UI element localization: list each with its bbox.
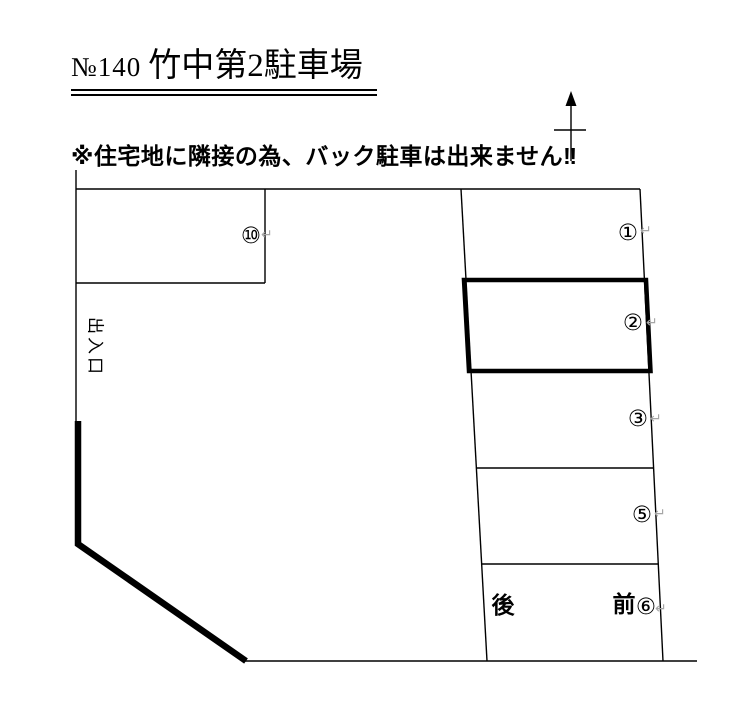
return-mark-icon: ↵: [655, 600, 667, 616]
north-arrow-icon: [554, 91, 586, 161]
space-label-5: ⑤: [632, 502, 652, 527]
property-boundary: [76, 170, 697, 661]
return-mark-icon: ↵: [650, 410, 662, 426]
space-10-rect: [76, 189, 265, 283]
space-label-3: ③: [628, 406, 648, 431]
space-label-10: ⑩: [241, 223, 261, 248]
parking-diagram: 出入口 後 前 ① ② ③ ⑤ ⑥ ⑩ ↵ ↵ ↵ ↵ ↵ ↵: [0, 0, 734, 727]
north-arrow-head: [566, 91, 577, 106]
return-mark-icon: ↵: [640, 222, 652, 238]
boundary-thick-wall: [78, 421, 246, 661]
return-mark-icon: ↵: [646, 314, 658, 330]
space-label-2: ②: [623, 310, 643, 335]
return-mark-icon: ↵: [261, 226, 273, 242]
front-label: 前: [613, 591, 636, 617]
space-label-1: ①: [618, 220, 638, 245]
entrance-label: 出入口: [86, 317, 105, 377]
space-label-6: ⑥: [636, 594, 656, 619]
parking-map-document: №140竹中第2駐車場 ※住宅地に隣接の為、バック駐車は出来ません‼: [0, 0, 734, 727]
back-label: 後: [492, 592, 516, 618]
return-mark-icon: ↵: [654, 505, 666, 521]
column-left-edge: [461, 189, 487, 661]
